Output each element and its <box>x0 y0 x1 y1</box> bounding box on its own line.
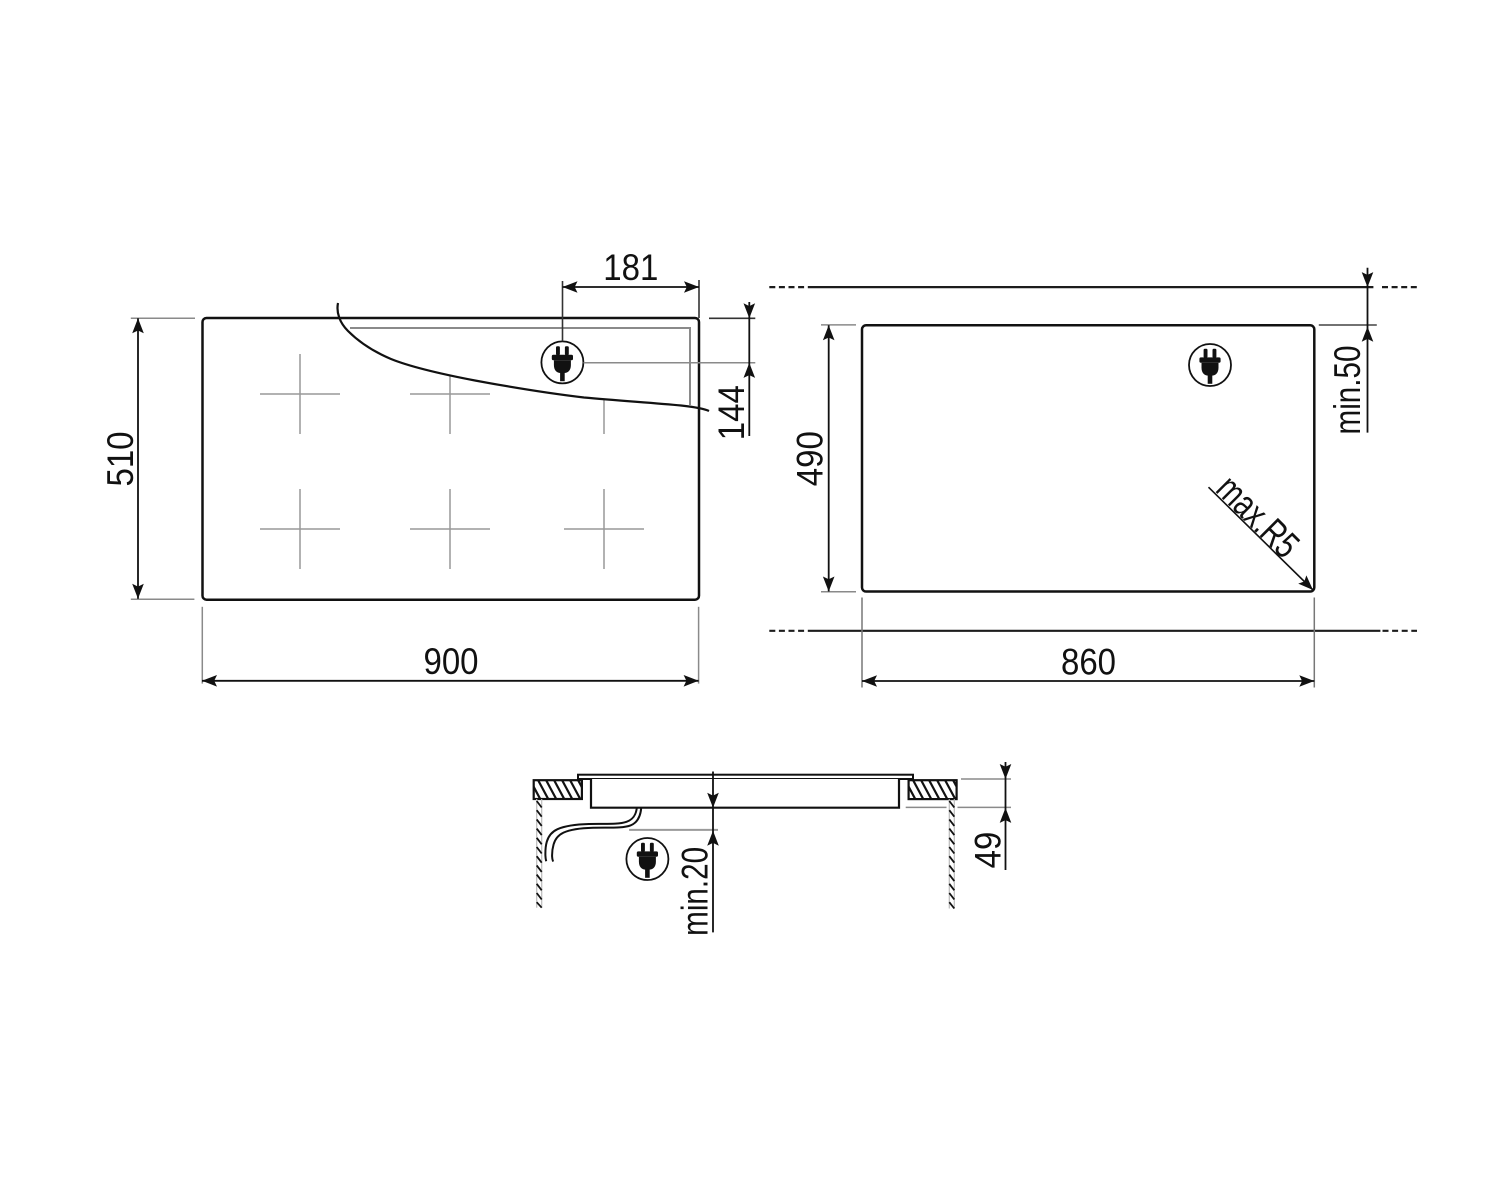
svg-text:144: 144 <box>711 385 752 440</box>
svg-text:490: 490 <box>790 431 831 486</box>
svg-text:860: 860 <box>1061 641 1116 682</box>
svg-text:181: 181 <box>603 247 658 288</box>
svg-text:min.20: min.20 <box>674 847 716 936</box>
svg-text:49: 49 <box>968 832 1009 869</box>
svg-text:510: 510 <box>100 431 141 486</box>
svg-text:min.50: min.50 <box>1327 346 1369 435</box>
svg-text:900: 900 <box>423 641 478 682</box>
